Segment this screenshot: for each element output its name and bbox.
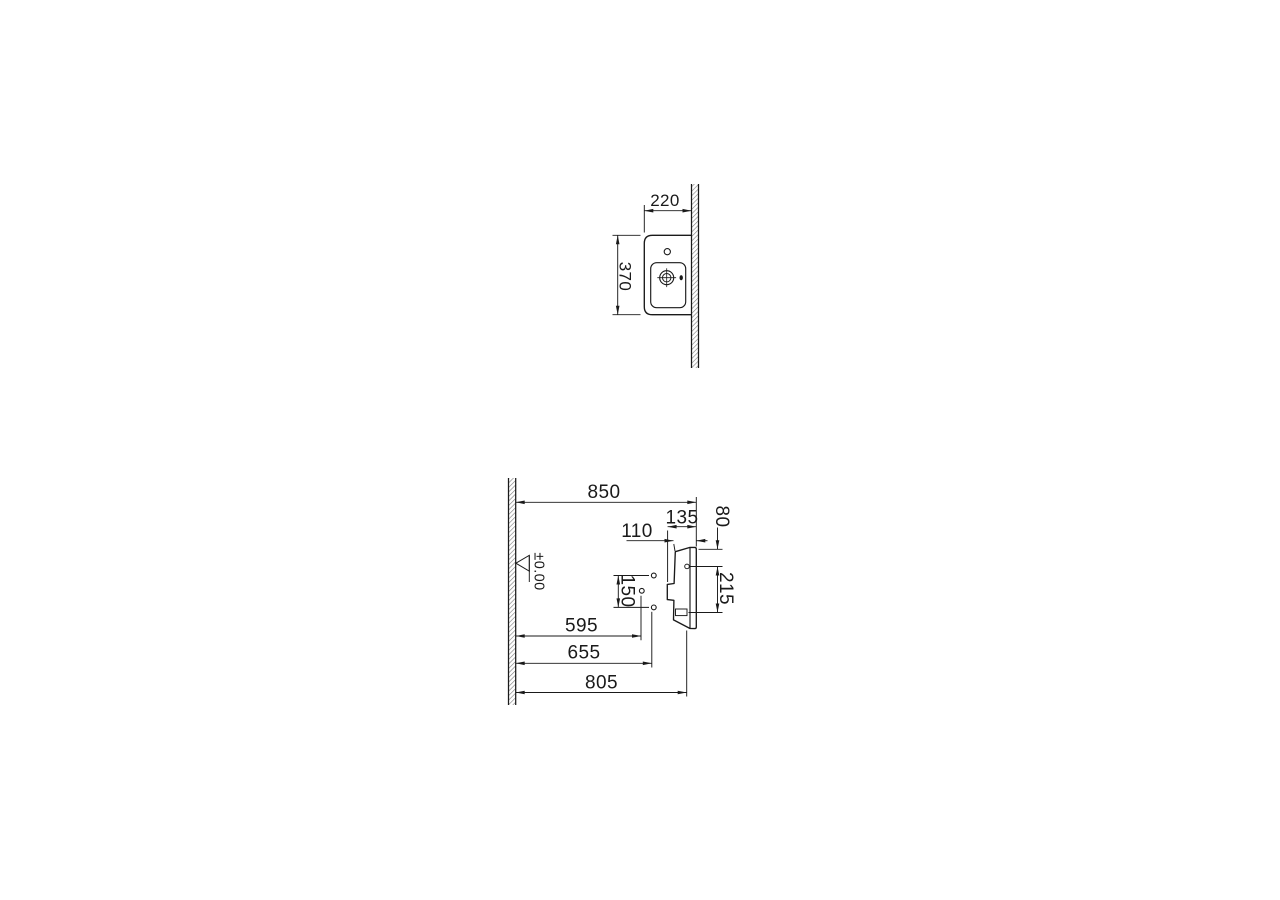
- dim-depth-label: 370: [616, 262, 635, 292]
- service-holes: [639, 573, 656, 610]
- dim-depth: 370: [613, 235, 641, 314]
- wall-hatch: [692, 184, 699, 368]
- plan-view: 220 370: [613, 184, 699, 368]
- technical-drawing: 220 370 ±0.00: [0, 0, 1280, 900]
- overflow-mark: [680, 275, 683, 280]
- floor-hatch: [509, 478, 516, 705]
- dim-drain-height-label: 595: [565, 616, 598, 637]
- dim-basin-depth-label: 110: [621, 521, 653, 542]
- dim-tap-to-fixing-label: 215: [715, 572, 736, 605]
- dim-supply-height-label: 655: [568, 643, 601, 664]
- tap-hole: [664, 249, 670, 255]
- dim-tap-offset-label: 80: [711, 506, 732, 528]
- dim-outlet-depth: 135: [666, 508, 699, 583]
- drain-symbol: [657, 268, 676, 287]
- dim-width: 220: [644, 191, 691, 233]
- datum-label: ±0.00: [531, 552, 547, 590]
- dim-underside-height-label: 805: [585, 673, 618, 694]
- basin-profile: [667, 547, 696, 628]
- supply-hole-right: [651, 605, 656, 610]
- dim-outlet-depth-label: 135: [666, 508, 699, 529]
- elevation-view: ±0.00 850 135: [509, 478, 737, 705]
- tap-hole-profile: [685, 564, 690, 569]
- bowl-outline: [651, 263, 686, 308]
- dim-rim-height-label: 850: [588, 482, 621, 503]
- basin-outline: [644, 235, 691, 314]
- dim-width-label: 220: [650, 191, 680, 210]
- drain-hole: [639, 588, 644, 593]
- fixing-slot: [676, 609, 688, 616]
- datum-symbol: ±0.00: [516, 552, 547, 590]
- supply-hole-left: [651, 573, 656, 578]
- dim-hole-spacing-label: 150: [617, 575, 638, 608]
- drawing-sheet: 220 370 ±0.00: [0, 0, 1280, 900]
